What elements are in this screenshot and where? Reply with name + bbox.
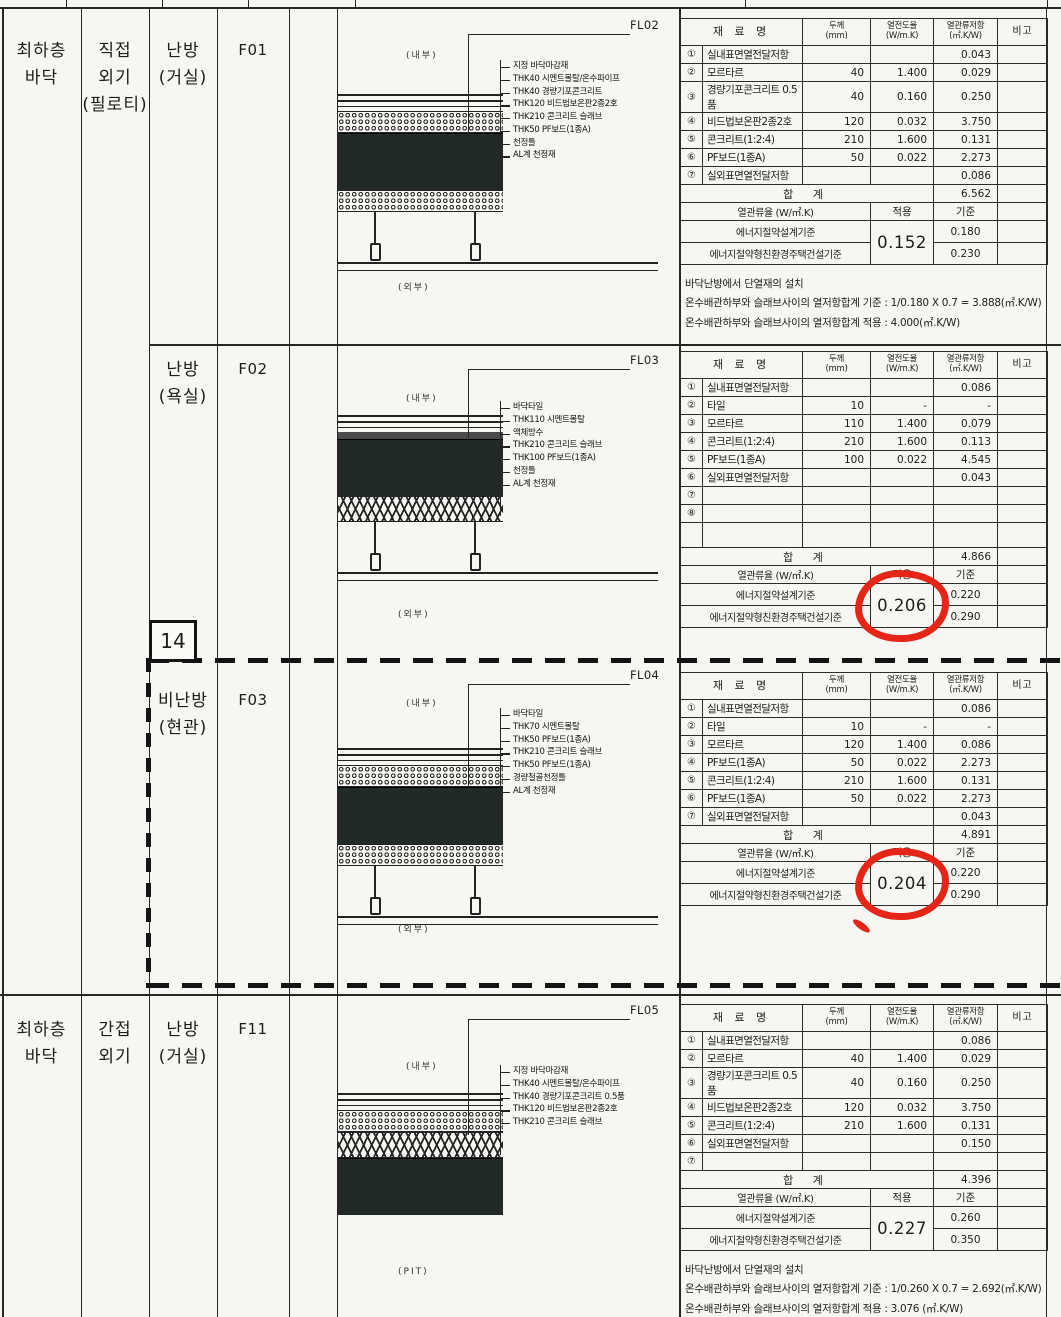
sum-value: 4.396 [934, 1171, 998, 1189]
annotation-list: 지정 바닥마감재THK40 시멘트몰탈/온수파이프THK40 경량기포콘크리트T… [500, 60, 620, 162]
remark-cell [998, 113, 1048, 131]
material-name: 비드법보온판2종2호 [703, 1099, 803, 1117]
conductivity-value: 0.022 [871, 754, 934, 772]
applied-header: 적용 [871, 1189, 934, 1207]
material-name: 실내표면열전달저항 [703, 700, 803, 718]
row-number: ⑤ [681, 451, 703, 469]
annotation-item: THK70 시멘트몰탈 [501, 721, 602, 734]
material-name: 콘크리트(1:2:4) [703, 772, 803, 790]
remark-cell [998, 606, 1048, 628]
material-row: ③경량기포콘크리트 0.5품400.1600.250 [681, 1068, 1048, 1099]
remark-cell [998, 415, 1048, 433]
row-number: ⑦ [681, 1153, 703, 1171]
material-row: ③경량기포콘크리트 0.5품400.1600.250 [681, 82, 1048, 113]
remark-cell [998, 700, 1048, 718]
row-number: ① [681, 379, 703, 397]
conductivity-value: 1.600 [871, 131, 934, 149]
floor-level-label: FL03 [630, 353, 659, 367]
thickness-header: 두께 (mm) [803, 673, 871, 700]
room-type-cell: 비난방 (현관) [149, 688, 217, 742]
remark-cell [998, 1153, 1048, 1171]
finish-line [338, 1105, 503, 1106]
u-value-header-row: 열관류율 (W/㎡.K)적용기준 [681, 566, 1048, 584]
floor-heating-notes: 바닥난방에서 단열재의 설치온수배관하부와 슬래브사이의 열저항합계 기준 : … [680, 1261, 1061, 1317]
thickness-value: 10 [803, 397, 871, 415]
conductivity-value: 0.022 [871, 451, 934, 469]
remark-cell [998, 548, 1048, 566]
conductivity-value: 0.022 [871, 149, 934, 167]
remark-cell [998, 131, 1048, 149]
material-name: 실내표면열전달저항 [703, 1032, 803, 1050]
resistance-header: 열관류저항 (㎡.K/W) [934, 1005, 998, 1032]
resistance-header: 열관류저항 (㎡.K/W) [934, 19, 998, 46]
annotation-item: THK210 콘크리트 슬래브 [501, 111, 620, 124]
calc-table-column: 재 료 명두께 (mm)열전도율 (W/m.K)열관류저항 (㎡.K/W)비고①… [680, 18, 1061, 333]
finish-line [338, 415, 503, 417]
sum-row: 합 계4.866 [681, 548, 1048, 566]
row-number: ④ [681, 754, 703, 772]
thickness-value [803, 523, 871, 548]
remark-cell [998, 469, 1048, 487]
resistance-value: 2.273 [934, 149, 998, 167]
concrete-slab-band [338, 439, 503, 496]
conductivity-value: 1.400 [871, 64, 934, 82]
insulation-zigzag-band [338, 496, 503, 522]
resistance-value [934, 505, 998, 523]
conductivity-value [871, 523, 934, 548]
material-row: ⑤콘크리트(1:2:4)2101.6000.131 [681, 772, 1048, 790]
thickness-value [803, 1135, 871, 1153]
material-row: ①실내표면열전달저항0.086 [681, 700, 1048, 718]
annotation-list: 바닥타일THK110 시멘트몰탈액체방수THK210 콘크리트 슬래브THK10… [500, 401, 602, 490]
criteria-row: 에너지절약형친환경주택건설기준0.230 [681, 243, 1048, 265]
fl-leader-line [468, 369, 630, 370]
thickness-header: 두께 (mm) [803, 19, 871, 46]
remark-cell [998, 1117, 1048, 1135]
annotation-item: 바닥타일 [501, 401, 602, 414]
material-row: ⑤콘크리트(1:2:4)2101.6000.131 [681, 1117, 1048, 1135]
hanger-bolt [374, 866, 376, 899]
remark-cell [998, 1171, 1048, 1189]
annotation-list: 지정 바닥마감재THK40 시멘트몰탈/온수파이프THK40 경량기포콘크리트 … [500, 1065, 625, 1129]
detail-code-cell: F11 [217, 1017, 289, 1041]
material-header: 재 료 명 [681, 673, 803, 700]
conductivity-value: - [871, 397, 934, 415]
remark-cell [998, 718, 1048, 736]
resistance-value: 0.079 [934, 415, 998, 433]
fl-leader-line [468, 34, 630, 35]
u-value-label: 열관류율 (W/㎡.K) [681, 203, 871, 221]
finish-line [338, 421, 503, 423]
finish-line [338, 760, 503, 761]
criteria-row: 에너지절약설계기준0.2270.260 [681, 1207, 1048, 1229]
material-name: 실외표면열전달저항 [703, 469, 803, 487]
applied-header: 적용 [871, 203, 934, 221]
calc-table-column: 재 료 명두께 (mm)열전도율 (W/m.K)열관류저항 (㎡.K/W)비고①… [680, 1004, 1061, 1317]
thickness-value: 40 [803, 64, 871, 82]
row-number: ⑥ [681, 790, 703, 808]
conductivity-value: 0.032 [871, 1099, 934, 1117]
annotation-item: 경량철골천정틀 [501, 772, 602, 785]
standard-u-value: 0.220 [934, 862, 998, 884]
resistance-value: 0.086 [934, 379, 998, 397]
table-header-row: 재 료 명두께 (mm)열전도율 (W/m.K)열관류저항 (㎡.K/W)비고 [681, 1005, 1048, 1032]
section-F03: 비난방 (현관)F03FL04(내부)(외부)바닥타일THK70 시멘트몰탈TH… [0, 660, 1061, 994]
criteria-row: 에너지절약설계기준0.2040.220 [681, 862, 1048, 884]
criteria-label: 에너지절약설계기준 [681, 584, 871, 606]
material-header: 재 료 명 [681, 352, 803, 379]
resistance-value: - [934, 718, 998, 736]
material-header: 재 료 명 [681, 19, 803, 46]
red-circle-tail [851, 917, 871, 934]
remark-cell [998, 433, 1048, 451]
resistance-value: 0.131 [934, 131, 998, 149]
construction-layer-bands [338, 748, 503, 866]
material-name [703, 487, 803, 505]
resistance-value [934, 1153, 998, 1171]
applied-header: 적용 [871, 566, 934, 584]
annotation-item: 천정틀 [501, 465, 602, 478]
finish-line [338, 748, 503, 750]
material-name: 실외표면열전달저항 [703, 808, 803, 826]
material-name: 실외표면열전달저항 [703, 167, 803, 185]
conductivity-value: 1.600 [871, 772, 934, 790]
waterproof-band [338, 432, 503, 439]
note-line: 바닥난방에서 단열재의 설치 [685, 1261, 1061, 1280]
calc-table-column: 재 료 명두께 (mm)열전도율 (W/m.K)열관류저항 (㎡.K/W)비고①… [680, 672, 1061, 906]
annotation-item: THK50 PF보드(1종A) [501, 124, 620, 137]
table-header-row: 재 료 명두께 (mm)열전도율 (W/m.K)열관류저항 (㎡.K/W)비고 [681, 19, 1048, 46]
material-row: ⑦실외표면열전달저항0.086 [681, 167, 1048, 185]
remark-cell [998, 167, 1048, 185]
row-number: ④ [681, 1099, 703, 1117]
applied-u-value: 0.206 [871, 584, 934, 628]
criteria-row: 에너지절약형친환경주택건설기준0.290 [681, 884, 1048, 906]
annotation-item: 액체방수 [501, 427, 602, 440]
thickness-value [803, 1032, 871, 1050]
material-name: PF보드(1종A) [703, 451, 803, 469]
conductivity-header: 열전도율 (W/m.K) [871, 1005, 934, 1032]
conductivity-value [871, 700, 934, 718]
remark-cell [998, 736, 1048, 754]
criteria-label: 에너지절약형친환경주택건설기준 [681, 243, 871, 265]
thickness-value: 210 [803, 1117, 871, 1135]
conductivity-value [871, 1032, 934, 1050]
thickness-value: 210 [803, 772, 871, 790]
ceiling-lines [338, 572, 658, 581]
row-number: ③ [681, 82, 703, 113]
construction-layer-bands [338, 94, 503, 212]
row-number: ④ [681, 433, 703, 451]
material-annotations: 지정 바닥마감재THK40 시멘트몰탈/온수파이프THK40 경량기포콘크리트T… [500, 60, 620, 162]
material-name: 타일 [703, 397, 803, 415]
conductivity-value [871, 46, 934, 64]
material-row: ⑥PF보드(1종A)500.0222.273 [681, 790, 1048, 808]
outer-side-label: (외부) [398, 280, 430, 293]
criteria-row: 에너지절약형친환경주택건설기준0.290 [681, 606, 1048, 628]
conductivity-header: 열전도율 (W/m.K) [871, 673, 934, 700]
sum-label: 합 계 [681, 185, 934, 203]
ceiling-hanger-row [338, 866, 658, 916]
remark-cell [998, 1135, 1048, 1153]
inner-side-label: (내부) [406, 48, 438, 61]
material-row: ④비드법보온판2종2호1200.0323.750 [681, 113, 1048, 131]
annotation-item: 지정 바닥마감재 [501, 60, 620, 73]
criteria-row: 에너지절약설계기준0.2060.220 [681, 584, 1048, 606]
material-name: 모르타르 [703, 1050, 803, 1068]
material-row: ②모르타르401.4000.029 [681, 1050, 1048, 1068]
resistance-value: 0.131 [934, 772, 998, 790]
room-type-cell: 난방 (거실) [149, 1017, 217, 1071]
conductivity-value [871, 505, 934, 523]
grid-top-stub [745, 0, 746, 7]
remark-cell [998, 64, 1048, 82]
thickness-value: 40 [803, 82, 871, 113]
remark-cell [998, 46, 1048, 64]
remark-cell [998, 185, 1048, 203]
insulation-detail-sheet: 14 최하층 바닥직접 외기 (필로티)난방 (거실)F01FL02(내부)(외… [0, 0, 1061, 1317]
row-number [681, 523, 703, 548]
finish-line [338, 106, 503, 107]
remark-cell [998, 1032, 1048, 1050]
annotation-item: THK40 시멘트몰탈/온수파이프 [501, 73, 620, 86]
insulation-hatch-band [338, 765, 503, 787]
row-number: ⑥ [681, 1135, 703, 1153]
thickness-value: 120 [803, 736, 871, 754]
thickness-value: 120 [803, 113, 871, 131]
thickness-value: 50 [803, 790, 871, 808]
material-name: 모르타르 [703, 415, 803, 433]
fl-leader-line [468, 684, 469, 790]
remark-cell [998, 1050, 1048, 1068]
annotation-item: THK50 PF보드(1종A) [501, 759, 602, 772]
revision-marker-box: 14 [149, 620, 197, 662]
resistance-value: - [934, 397, 998, 415]
fl-leader-line [468, 1019, 630, 1020]
annotation-item: THK210 콘크리트 슬래브 [501, 746, 602, 759]
material-row: ⑤PF보드(1종A)1000.0224.545 [681, 451, 1048, 469]
conductivity-value: 0.032 [871, 113, 934, 131]
annotation-item: THK40 경량기포콘크리트 0.5품 [501, 1091, 625, 1104]
resistance-value: 0.086 [934, 700, 998, 718]
conductivity-value [871, 167, 934, 185]
sum-row: 합 계6.562 [681, 185, 1048, 203]
thickness-value [803, 379, 871, 397]
conductivity-value: 0.160 [871, 82, 934, 113]
material-annotations: 바닥타일THK110 시멘트몰탈액체방수THK210 콘크리트 슬래브THK10… [500, 401, 602, 490]
floor-type-cell: 최하층 바닥 [2, 1017, 81, 1071]
criteria-label: 에너지절약형친환경주택건설기준 [681, 1229, 871, 1251]
insulation-hatch-band [338, 1110, 503, 1132]
remark-header: 비고 [998, 352, 1048, 379]
inner-side-label: (내부) [406, 391, 438, 404]
material-name: 콘크리트(1:2:4) [703, 433, 803, 451]
thickness-value: 50 [803, 149, 871, 167]
annotation-list: 바닥타일THK70 시멘트몰탈THK50 PF보드(1종A)THK210 콘크리… [500, 708, 602, 797]
remark-cell [998, 844, 1048, 862]
annotation-item: AL계 천정재 [501, 785, 602, 798]
thickness-value [803, 46, 871, 64]
material-row: ①실내표면열전달저항0.086 [681, 1032, 1048, 1050]
annotation-item: THK120 비드법보온판2종2호 [501, 98, 620, 111]
resistance-value: 0.043 [934, 808, 998, 826]
thickness-value: 40 [803, 1050, 871, 1068]
row-number: ⑤ [681, 772, 703, 790]
outer-side-label: (PIT) [398, 1267, 429, 1277]
ceiling-lines [338, 262, 658, 271]
floor-level-label: FL02 [630, 18, 659, 32]
u-value-table: 재 료 명두께 (mm)열전도율 (W/m.K)열관류저항 (㎡.K/W)비고①… [680, 672, 1048, 906]
thickness-value: 110 [803, 415, 871, 433]
row-number: ⑥ [681, 149, 703, 167]
conductivity-value [871, 469, 934, 487]
criteria-row: 에너지절약설계기준0.1520.180 [681, 221, 1048, 243]
u-value-header-row: 열관류율 (W/㎡.K)적용기준 [681, 1189, 1048, 1207]
row-number: ⑤ [681, 1117, 703, 1135]
material-row [681, 523, 1048, 548]
conductivity-value: 1.400 [871, 415, 934, 433]
floor-level-label: FL04 [630, 668, 659, 682]
row-number: ③ [681, 736, 703, 754]
u-value-label: 열관류율 (W/㎡.K) [681, 844, 871, 862]
remark-cell [998, 862, 1048, 884]
remark-cell [998, 1099, 1048, 1117]
conductivity-value [871, 808, 934, 826]
material-name: 비드법보온판2종2호 [703, 113, 803, 131]
material-name: PF보드(1종A) [703, 754, 803, 772]
u-value-header-row: 열관류율 (W/㎡.K)적용기준 [681, 203, 1048, 221]
standard-u-value: 0.290 [934, 884, 998, 906]
remark-header: 비고 [998, 19, 1048, 46]
criteria-label: 에너지절약설계기준 [681, 221, 871, 243]
criteria-label: 에너지절약설계기준 [681, 862, 871, 884]
annotation-item: THK40 시멘트몰탈/온수파이프 [501, 1078, 625, 1091]
material-annotations: 지정 바닥마감재THK40 시멘트몰탈/온수파이프THK40 경량기포콘크리트 … [500, 1065, 625, 1129]
sum-label: 합 계 [681, 548, 934, 566]
calc-table-column: 재 료 명두께 (mm)열전도율 (W/m.K)열관류저항 (㎡.K/W)비고①… [680, 351, 1061, 628]
row-number: ② [681, 64, 703, 82]
material-header: 재 료 명 [681, 1005, 803, 1032]
remark-cell [998, 1207, 1048, 1229]
standard-u-value: 0.220 [934, 584, 998, 606]
conductivity-value: 1.600 [871, 433, 934, 451]
construction-layer-bands [338, 415, 503, 522]
thickness-value: 10 [803, 718, 871, 736]
row-number: ① [681, 46, 703, 64]
remark-cell [998, 884, 1048, 906]
finish-line [338, 1099, 503, 1101]
material-name: 모르타르 [703, 64, 803, 82]
section-F11: 최하층 바닥간접 외기난방 (거실)F11FL05(내부)(PIT)지정 바닥마… [0, 995, 1061, 1317]
standard-header: 기준 [934, 566, 998, 584]
ceiling-hanger-row [338, 522, 658, 572]
resistance-value: 0.250 [934, 1068, 998, 1099]
material-name: 타일 [703, 718, 803, 736]
room-type-cell: 난방 (욕실) [149, 357, 217, 411]
u-value-header-row: 열관류율 (W/㎡.K)적용기준 [681, 844, 1048, 862]
inner-side-label: (내부) [406, 696, 438, 709]
fl-leader-line [468, 369, 469, 457]
criteria-label: 에너지절약형친환경주택건설기준 [681, 606, 871, 628]
row-number: ③ [681, 415, 703, 433]
resistance-value: 0.029 [934, 64, 998, 82]
conductivity-value: 1.600 [871, 1117, 934, 1135]
concrete-slab-band [338, 133, 503, 190]
row-number: ⑥ [681, 469, 703, 487]
conductivity-value: 0.160 [871, 1068, 934, 1099]
standard-u-value: 0.290 [934, 606, 998, 628]
hanger-bolt [474, 522, 476, 555]
hanger-bolt [374, 212, 376, 245]
sum-row: 합 계4.396 [681, 1171, 1048, 1189]
annotation-item: 지정 바닥마감재 [501, 1065, 625, 1078]
fl-leader-line [468, 1019, 469, 1135]
thickness-value [803, 505, 871, 523]
remark-cell [998, 584, 1048, 606]
thickness-header: 두께 (mm) [803, 352, 871, 379]
finish-line [338, 1093, 503, 1095]
resistance-value: 0.131 [934, 1117, 998, 1135]
remark-cell [998, 790, 1048, 808]
exposure-type-cell: 간접 외기 [81, 1017, 149, 1071]
thickness-value [803, 1153, 871, 1171]
material-row: ④PF보드(1종A)500.0222.273 [681, 754, 1048, 772]
remark-cell [998, 243, 1048, 265]
inner-side-label: (내부) [406, 1059, 438, 1072]
remark-cell [998, 487, 1048, 505]
material-row: ⑥PF보드(1종A)500.0222.273 [681, 149, 1048, 167]
material-row: ⑦실외표면열전달저항0.043 [681, 808, 1048, 826]
outer-side-label: (외부) [398, 607, 430, 620]
exposure-type-cell: 직접 외기 (필로티) [81, 38, 149, 120]
thickness-value: 100 [803, 451, 871, 469]
sum-value: 4.891 [934, 826, 998, 844]
u-value-label: 열관류율 (W/㎡.K) [681, 566, 871, 584]
material-name: 경량기포콘크리트 0.5품 [703, 82, 803, 113]
applied-u-value: 0.152 [871, 221, 934, 265]
note-line: 온수배관하부와 슬래브사이의 열저항합계 적용 : 4.000(㎡.K/W) [685, 314, 1061, 333]
remark-cell [998, 754, 1048, 772]
material-name: PF보드(1종A) [703, 790, 803, 808]
material-name [703, 1153, 803, 1171]
resistance-value: 0.086 [934, 167, 998, 185]
remark-cell [998, 1229, 1048, 1251]
thickness-header: 두께 (mm) [803, 1005, 871, 1032]
grid-top-stub [66, 0, 67, 7]
material-row: ⑦ [681, 487, 1048, 505]
insulation-zigzag-band [338, 1132, 503, 1158]
thickness-value [803, 700, 871, 718]
remark-cell [998, 808, 1048, 826]
material-row: ④비드법보온판2종2호1200.0323.750 [681, 1099, 1048, 1117]
fl-leader-line [468, 684, 630, 685]
remark-cell [998, 772, 1048, 790]
annotation-item: THK110 시멘트몰탈 [501, 414, 602, 427]
thickness-value [803, 469, 871, 487]
conductivity-value: 1.400 [871, 736, 934, 754]
sum-label: 합 계 [681, 1171, 934, 1189]
concrete-slab-band [338, 1158, 503, 1215]
conductivity-value: 0.022 [871, 790, 934, 808]
remark-cell [998, 379, 1048, 397]
row-number: ② [681, 1050, 703, 1068]
row-number: ① [681, 700, 703, 718]
material-row: ⑥실외표면열전달저항0.043 [681, 469, 1048, 487]
resistance-value: 0.029 [934, 1050, 998, 1068]
note-line: 바닥난방에서 단열재의 설치 [685, 275, 1061, 294]
annotation-item: THK120 비드법보온판2종2호 [501, 1103, 625, 1116]
resistance-value: 0.113 [934, 433, 998, 451]
